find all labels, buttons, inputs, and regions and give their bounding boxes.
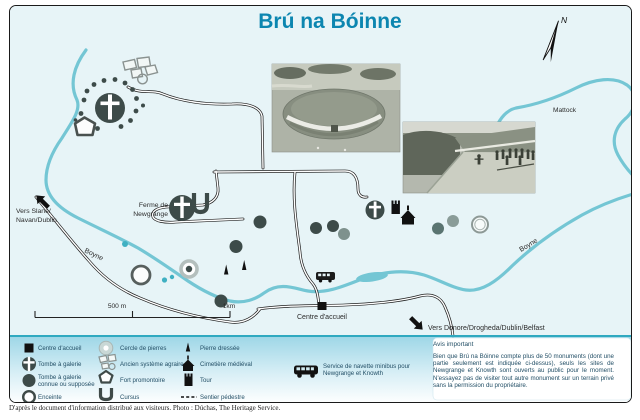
north-label: N <box>561 15 568 25</box>
legend-open-circle-icon <box>23 391 35 403</box>
legend-label-tombe-supposee: Tombe à galerie connue ou supposée <box>38 374 102 388</box>
legend-label-pierre-dressee: Pierre dressée <box>200 345 240 352</box>
legend-divider <box>10 335 632 337</box>
label-ferme-line1: Ferme de <box>139 202 168 209</box>
map-graphic: Brú na Bóinne N Vers Slane/ Navan/Dublin… <box>10 6 632 403</box>
scale-1km-label: 1km <box>223 303 236 310</box>
legend-label-fort-promontoire: Fort promontoire <box>120 377 165 384</box>
legend-filled-circle-icon <box>23 374 36 387</box>
label-mattock: Mattock <box>553 107 577 114</box>
legend-label-cercle-pierres: Cercle de pierres <box>120 345 166 352</box>
knowth-entrance-photo <box>403 122 535 193</box>
notice-title: Avis important <box>433 341 473 348</box>
label-vers-slane-line2: Navan/Dublin <box>16 217 57 224</box>
legend-label-centre-accueil: Centre d'accueil <box>38 345 82 352</box>
enclosure-icon-west <box>132 266 150 284</box>
legend-label-enceinte: Enceinte <box>38 394 62 401</box>
notice-body: Bien que Brú na Bóinne compte plus de 50… <box>433 353 614 389</box>
legend-stone-circle-icon <box>99 341 113 355</box>
label-ferme-line2: Newgrange <box>133 211 168 218</box>
east-passage-tomb-icon <box>366 201 385 220</box>
map-sheet: Brú na Bóinne N Vers Slane/ Navan/Dublin… <box>9 5 632 403</box>
scale-500m-label: 500 m <box>108 303 127 310</box>
visitor-centre-marker <box>318 302 327 310</box>
newgrange-passage-tomb-icon <box>169 195 195 221</box>
label-vers-slane-line1: Vers Slane/ <box>16 208 51 215</box>
legend-label-tombe-galerie: Tombe à galerie <box>38 361 81 368</box>
knowth-passage-tomb-icon <box>95 93 125 123</box>
enclosure-icon-east <box>472 217 488 233</box>
legend-visitor-centre-icon <box>25 344 34 353</box>
label-centre-accueil: Centre d'accueil <box>297 314 347 321</box>
legend-label-systeme-agraire: Ancien système agraire <box>120 361 184 368</box>
legend-label-tour: Tour <box>200 377 212 384</box>
tower-icon <box>392 201 400 215</box>
shuttle-service-label: Service de navette minibus pour Newgrang… <box>323 363 411 377</box>
legend-label-cimetiere: Cimetière médiéval <box>200 361 252 368</box>
legend-label-sentier: Sentier pédestre <box>200 394 245 401</box>
source-caption: D'après le document d'information distri… <box>9 404 280 412</box>
newgrange-aerial-photo <box>272 64 400 152</box>
legend-tower-icon <box>185 374 193 387</box>
stone-circle-icon <box>181 261 197 277</box>
legend-label-cursus: Cursus <box>120 394 139 401</box>
label-vers-donore: Vers Donore/Drogheda/Dublin/Belfast <box>428 325 545 332</box>
page-title: Brú na Bóinne <box>258 10 402 33</box>
